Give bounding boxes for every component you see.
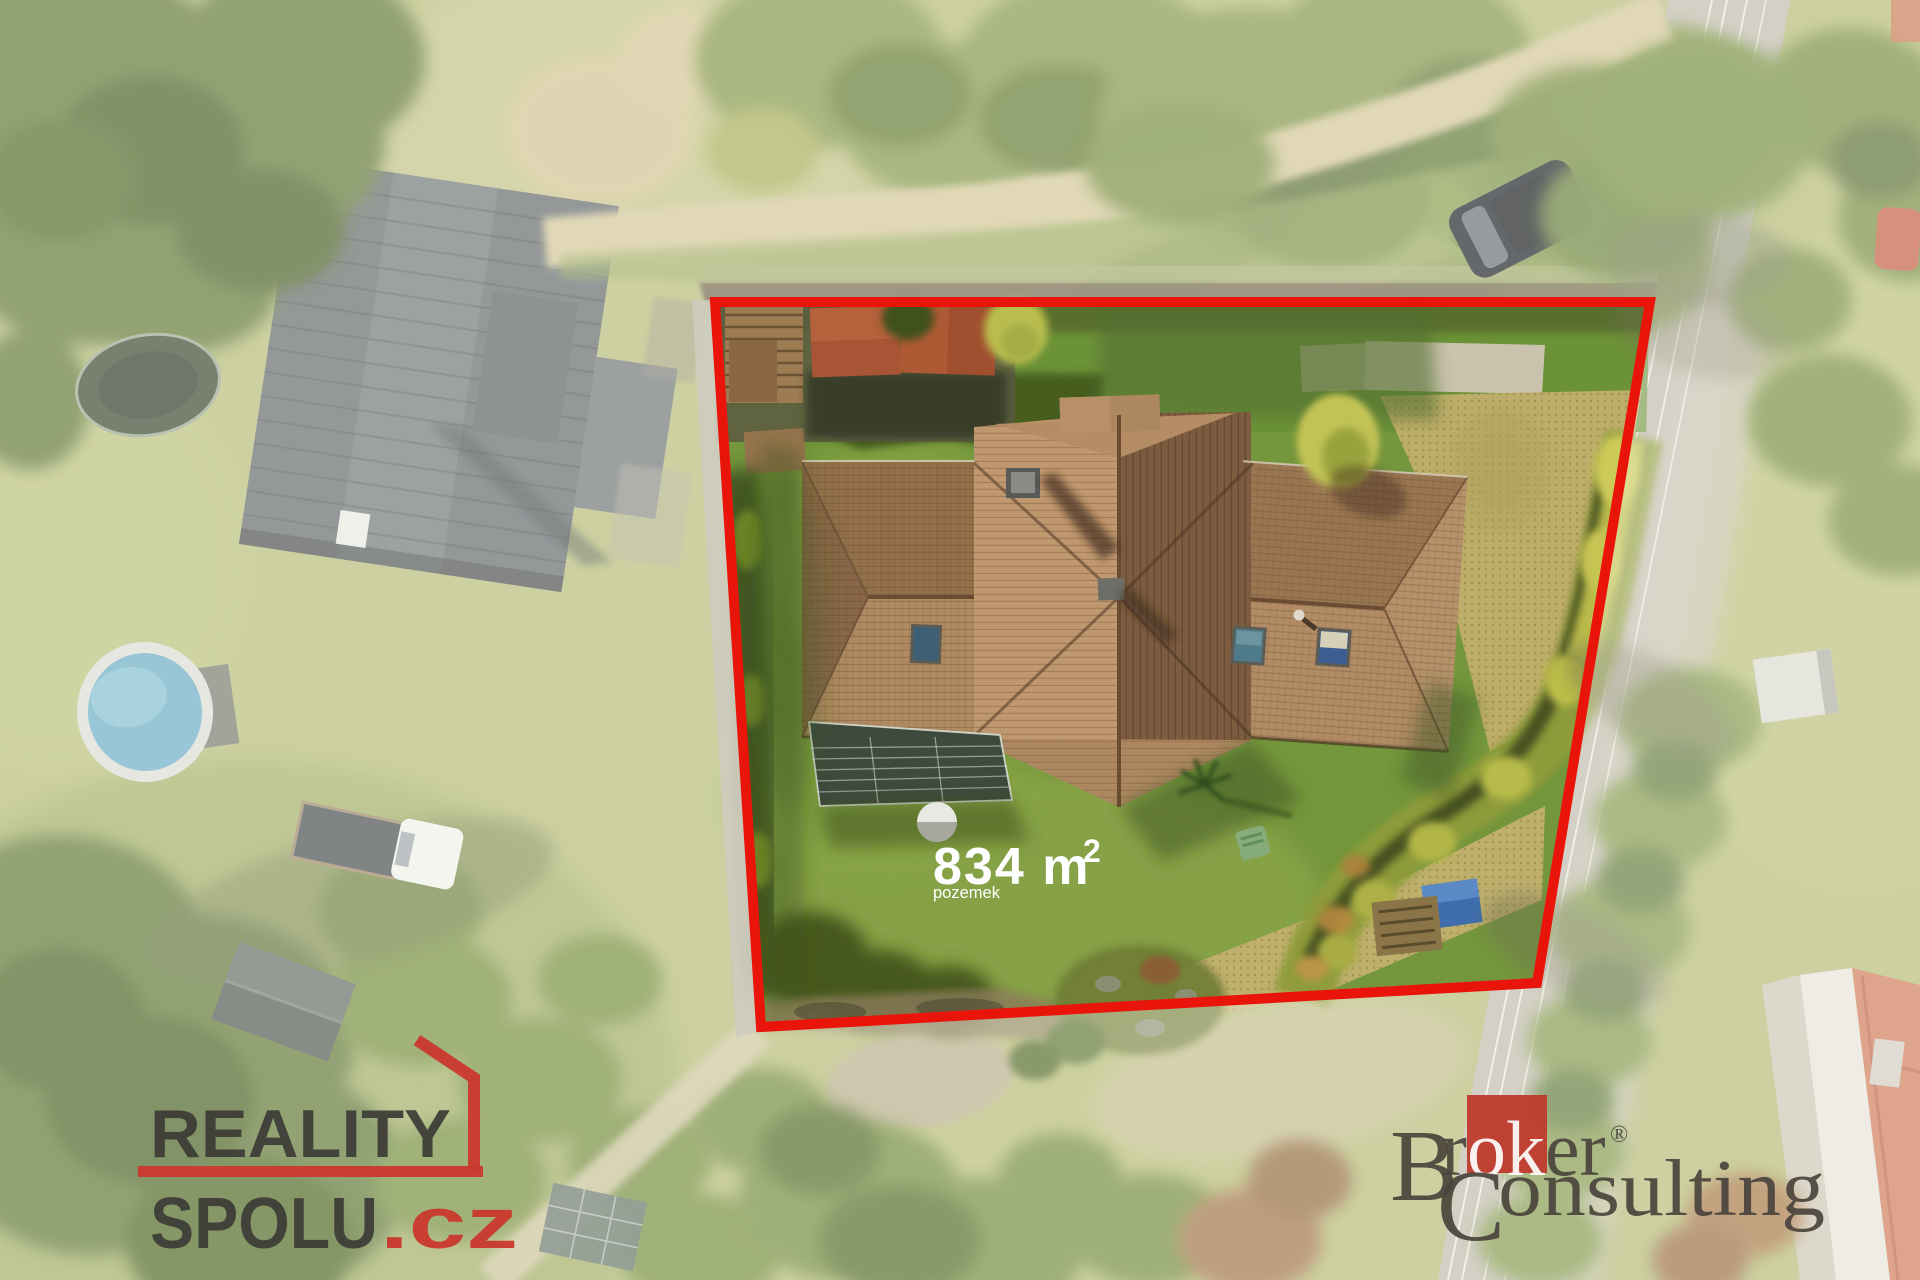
svg-text:.cz: .cz <box>380 1184 518 1264</box>
svg-text:SPOLU: SPOLU <box>150 1184 378 1264</box>
svg-text:C: C <box>1437 1150 1505 1263</box>
svg-text:pozemek: pozemek <box>933 884 1001 902</box>
svg-text:REALITY: REALITY <box>150 1096 451 1172</box>
svg-text:onsulting: onsulting <box>1498 1145 1825 1233</box>
svg-text:2: 2 <box>1083 833 1101 869</box>
